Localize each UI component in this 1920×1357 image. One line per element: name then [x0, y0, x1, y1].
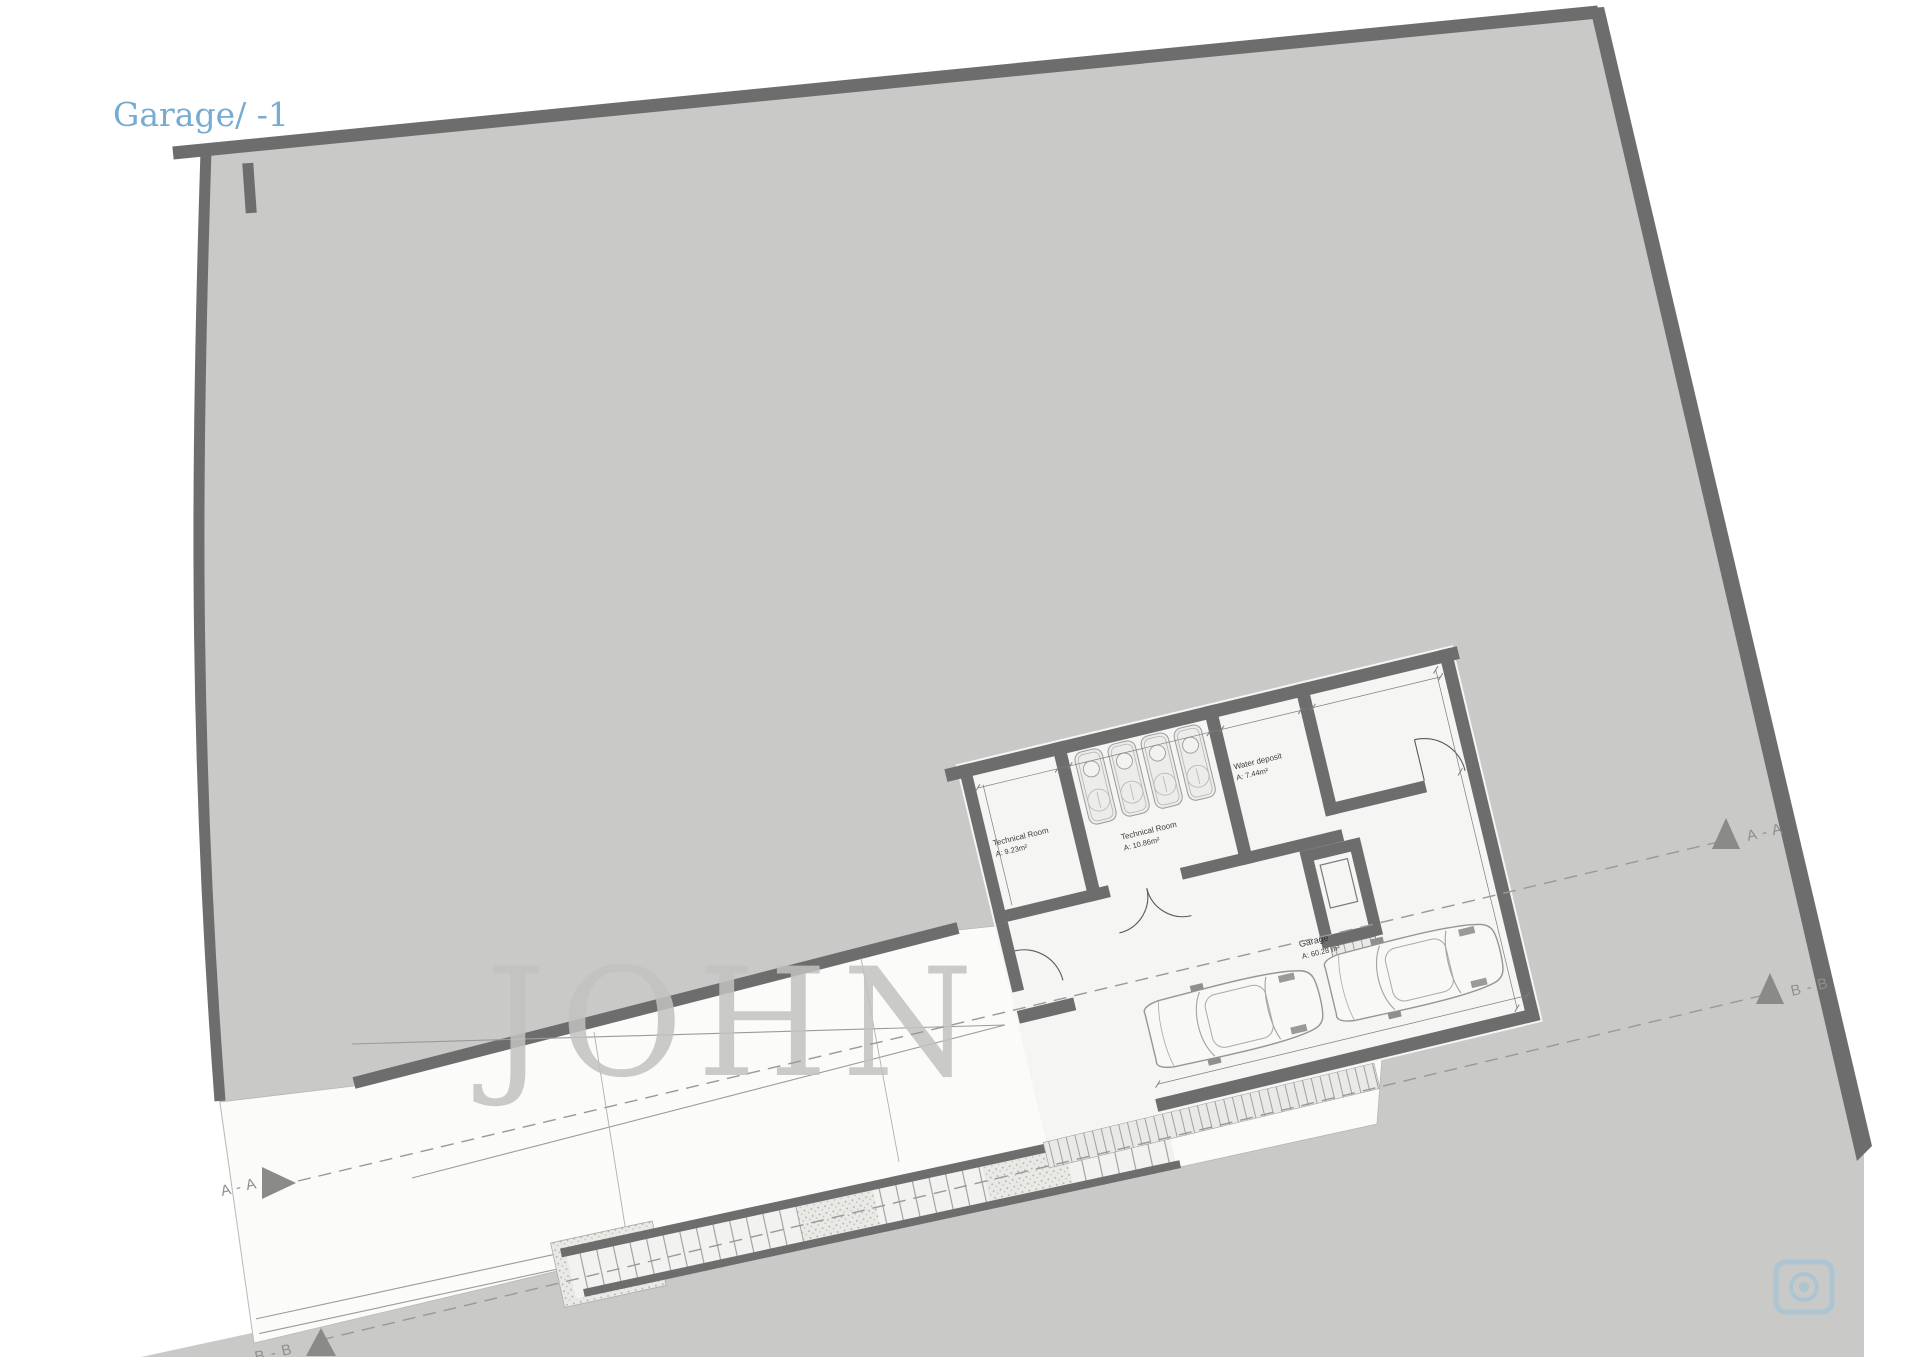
plan-sheet: JOHN	[0, 0, 1920, 1357]
page-title: Garage/ -1	[113, 95, 289, 134]
floor-plan-canvas: JOHN	[0, 0, 1920, 1357]
watermark-text: JOHN	[473, 937, 987, 1111]
